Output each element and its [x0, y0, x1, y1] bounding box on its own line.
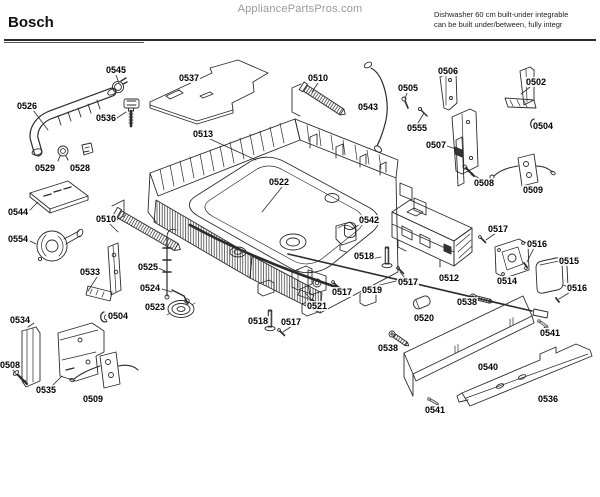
- part-callout-0542: 0542: [358, 215, 380, 225]
- part-callout-0510: 0510: [307, 73, 329, 83]
- part-callout-0514: 0514: [496, 276, 518, 286]
- part-callout-0509: 0509: [82, 394, 104, 404]
- parts-diagram-page: { "header": { "watermark": "AppliancePar…: [0, 0, 600, 492]
- part-callout-0505: 0505: [397, 83, 419, 93]
- part-callout-0513: 0513: [192, 129, 214, 139]
- part-callout-0529: 0529: [34, 163, 56, 173]
- part-callout-0518: 0518: [247, 316, 269, 326]
- part-callout-0538: 0538: [377, 343, 399, 353]
- part-callout-0545: 0545: [105, 65, 127, 75]
- part-callout-0507: 0507: [425, 140, 447, 150]
- part-callout-0502: 0502: [525, 77, 547, 87]
- part-callout-0537: 0537: [178, 73, 200, 83]
- part-callout-0509: 0509: [522, 185, 544, 195]
- part-callout-0528: 0528: [69, 163, 91, 173]
- part-callout-0521: 0521: [306, 301, 328, 311]
- part-callout-0533: 0533: [79, 267, 101, 277]
- part-callout-0517: 0517: [280, 317, 302, 327]
- part-callout-0506: 0506: [437, 66, 459, 76]
- part-callout-0524: 0524: [139, 283, 161, 293]
- part-callout-0535: 0535: [35, 385, 57, 395]
- part-callout-0512: 0512: [438, 273, 460, 283]
- part-callout-0523: 0523: [144, 302, 166, 312]
- part-callout-0517: 0517: [487, 224, 509, 234]
- part-callout-0519: 0519: [361, 285, 383, 295]
- part-callout-0508: 0508: [473, 178, 495, 188]
- part-callout-0526: 0526: [16, 101, 38, 111]
- part-callout-0522: 0522: [268, 177, 290, 187]
- part-callout-0540: 0540: [477, 362, 499, 372]
- part-callout-0517: 0517: [397, 277, 419, 287]
- part-callout-0534: 0534: [9, 315, 31, 325]
- part-callout-0516: 0516: [566, 283, 588, 293]
- part-callout-0543: 0543: [357, 102, 379, 112]
- part-callout-0536: 0536: [95, 113, 117, 123]
- part-callout-0554: 0554: [7, 234, 29, 244]
- part-callout-0516: 0516: [526, 239, 548, 249]
- part-callout-0504: 0504: [107, 311, 129, 321]
- part-callout-0541: 0541: [424, 405, 446, 415]
- part-callout-0544: 0544: [7, 207, 29, 217]
- part-callout-0517: 0517: [331, 287, 353, 297]
- part-callout-0515: 0515: [558, 256, 580, 266]
- part-callout-0541: 0541: [539, 328, 561, 338]
- part-callout-0518: 0518: [353, 251, 375, 261]
- part-callout-0508: 0508: [0, 360, 21, 370]
- part-callout-0538: 0538: [456, 297, 478, 307]
- part-callout-0525: 0525: [137, 262, 159, 272]
- part-callout-0510: 0510: [95, 214, 117, 224]
- part-callout-0555: 0555: [406, 123, 428, 133]
- part-callout-0536: 0536: [537, 394, 559, 404]
- callout-layer: 0545053705100506050205050526054305360504…: [0, 0, 600, 492]
- part-callout-0504: 0504: [532, 121, 554, 131]
- part-callout-0520: 0520: [413, 313, 435, 323]
